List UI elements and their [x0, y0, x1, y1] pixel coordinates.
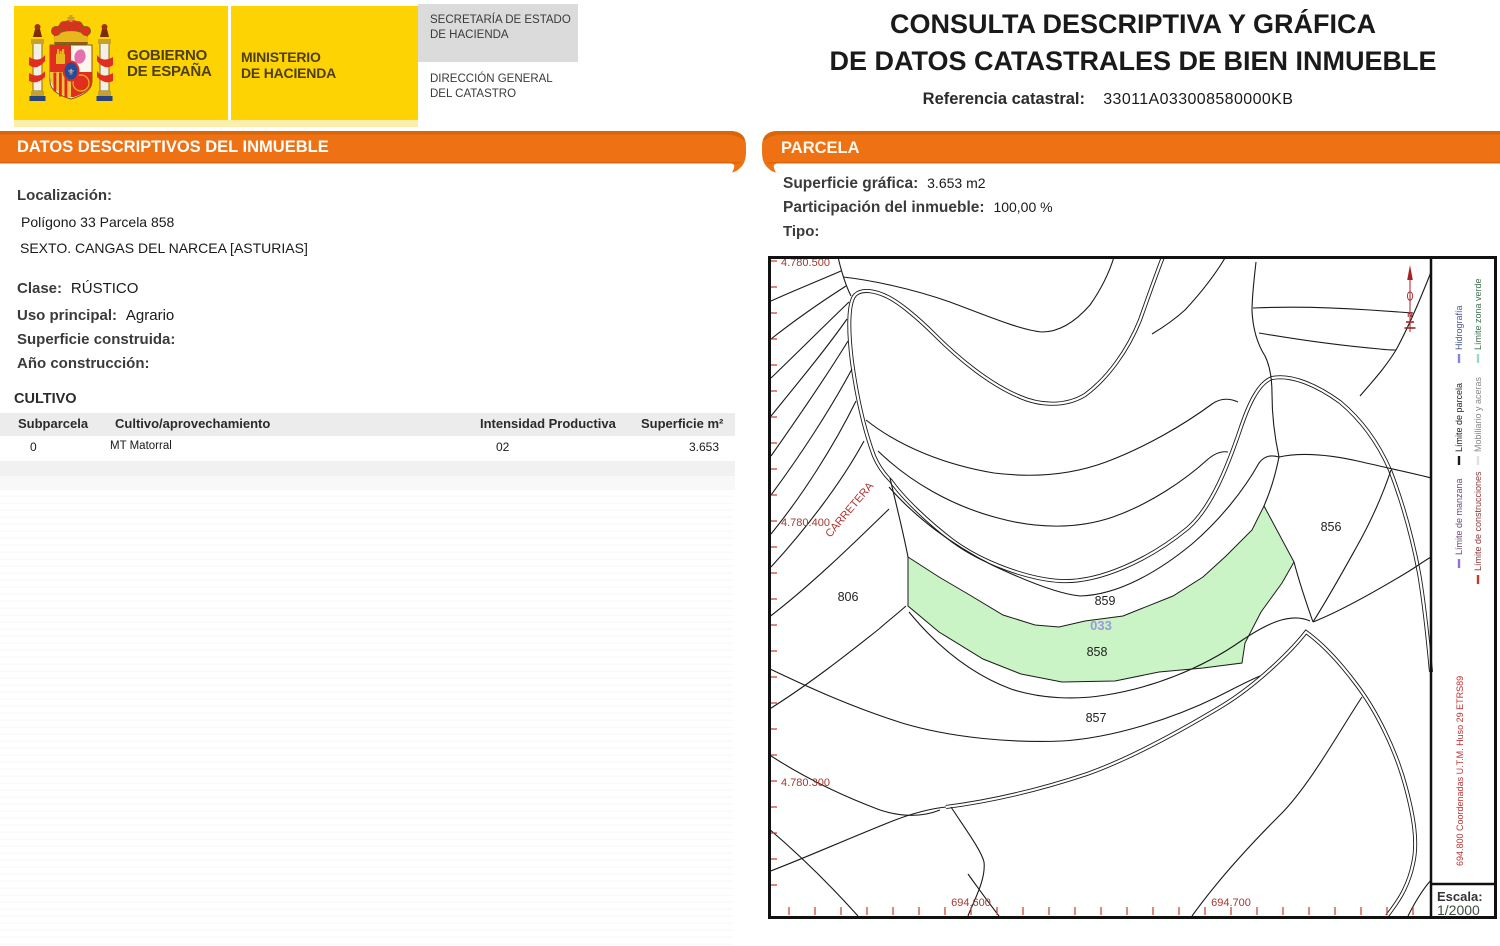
- svg-text:033: 033: [1090, 618, 1112, 633]
- svg-text:4.780.400: 4.780.400: [781, 517, 830, 529]
- svg-text:Hidrografía: Hidrografía: [1454, 305, 1464, 350]
- svg-text:Límite de parcela: Límite de parcela: [1454, 383, 1464, 452]
- svg-text:859: 859: [1095, 594, 1116, 608]
- svg-text:N: N: [1407, 310, 1412, 319]
- svg-text:Mobiliario y aceras: Mobiliario y aceras: [1473, 376, 1483, 452]
- svg-text:⚜: ⚜: [67, 67, 75, 77]
- svg-text:694.800 Coordenadas U.T.M. Hus: 694.800 Coordenadas U.T.M. Huso 29 ETRS8…: [1455, 676, 1465, 866]
- svg-text:856: 856: [1321, 520, 1342, 534]
- svg-text:857: 857: [1086, 711, 1107, 725]
- svg-text:694.700: 694.700: [1211, 897, 1251, 909]
- svg-text:806: 806: [838, 590, 859, 604]
- svg-text:1/2000: 1/2000: [1437, 902, 1480, 918]
- svg-text:Límite de construcciones: Límite de construcciones: [1473, 471, 1483, 571]
- svg-text:Límite zona verde: Límite zona verde: [1473, 278, 1483, 350]
- svg-text:694.600: 694.600: [951, 897, 991, 909]
- svg-text:Límite de manzana: Límite de manzana: [1454, 478, 1464, 555]
- svg-text:858: 858: [1087, 645, 1108, 659]
- svg-text:4.780.300: 4.780.300: [781, 777, 830, 789]
